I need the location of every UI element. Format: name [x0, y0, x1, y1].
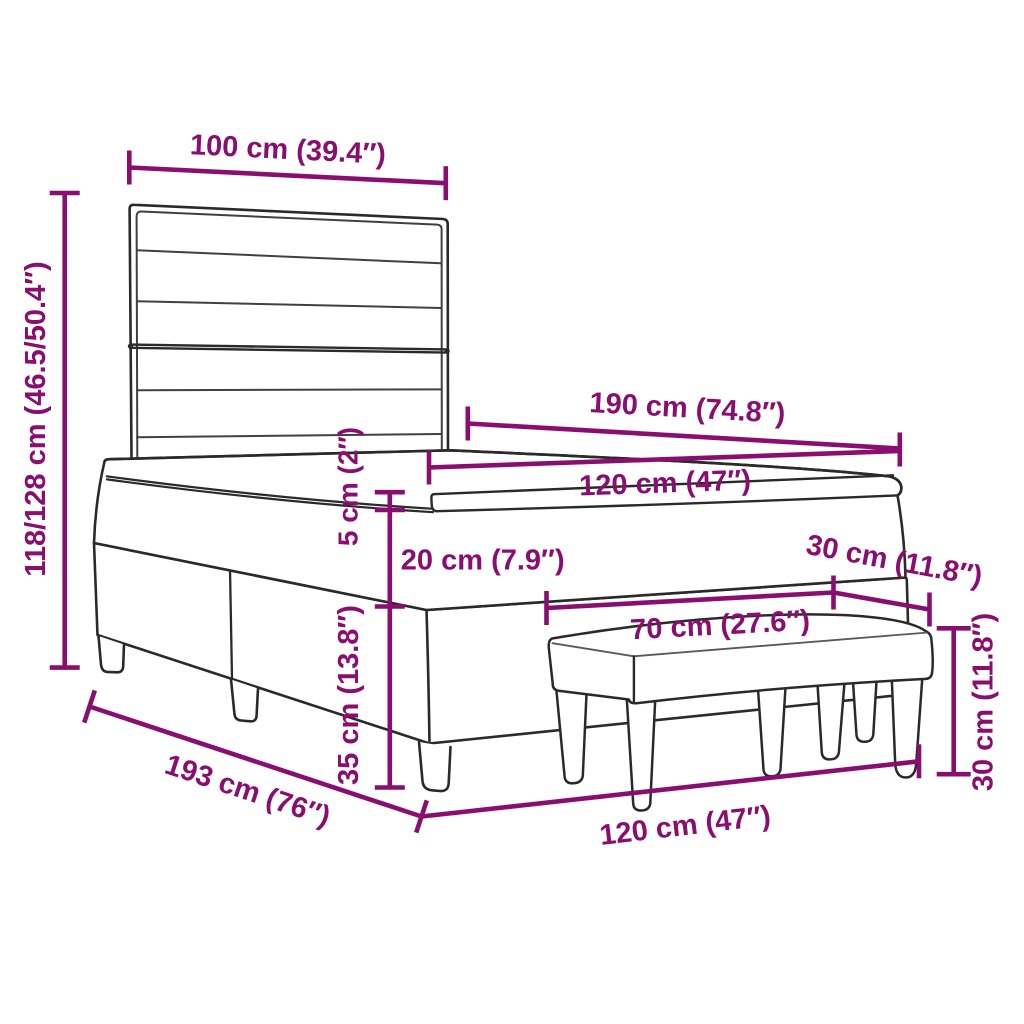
- svg-text:120 cm (47″): 120 cm (47″): [579, 465, 752, 503]
- svg-text:35 cm (13.8″): 35 cm (13.8″): [333, 605, 365, 785]
- svg-text:20 cm (7.9″): 20 cm (7.9″): [401, 544, 565, 576]
- svg-text:30 cm (11.8″): 30 cm (11.8″): [968, 613, 1000, 791]
- svg-text:5 cm (2″): 5 cm (2″): [333, 427, 364, 546]
- svg-text:118/128 cm (46.5/50.4″): 118/128 cm (46.5/50.4″): [20, 261, 52, 576]
